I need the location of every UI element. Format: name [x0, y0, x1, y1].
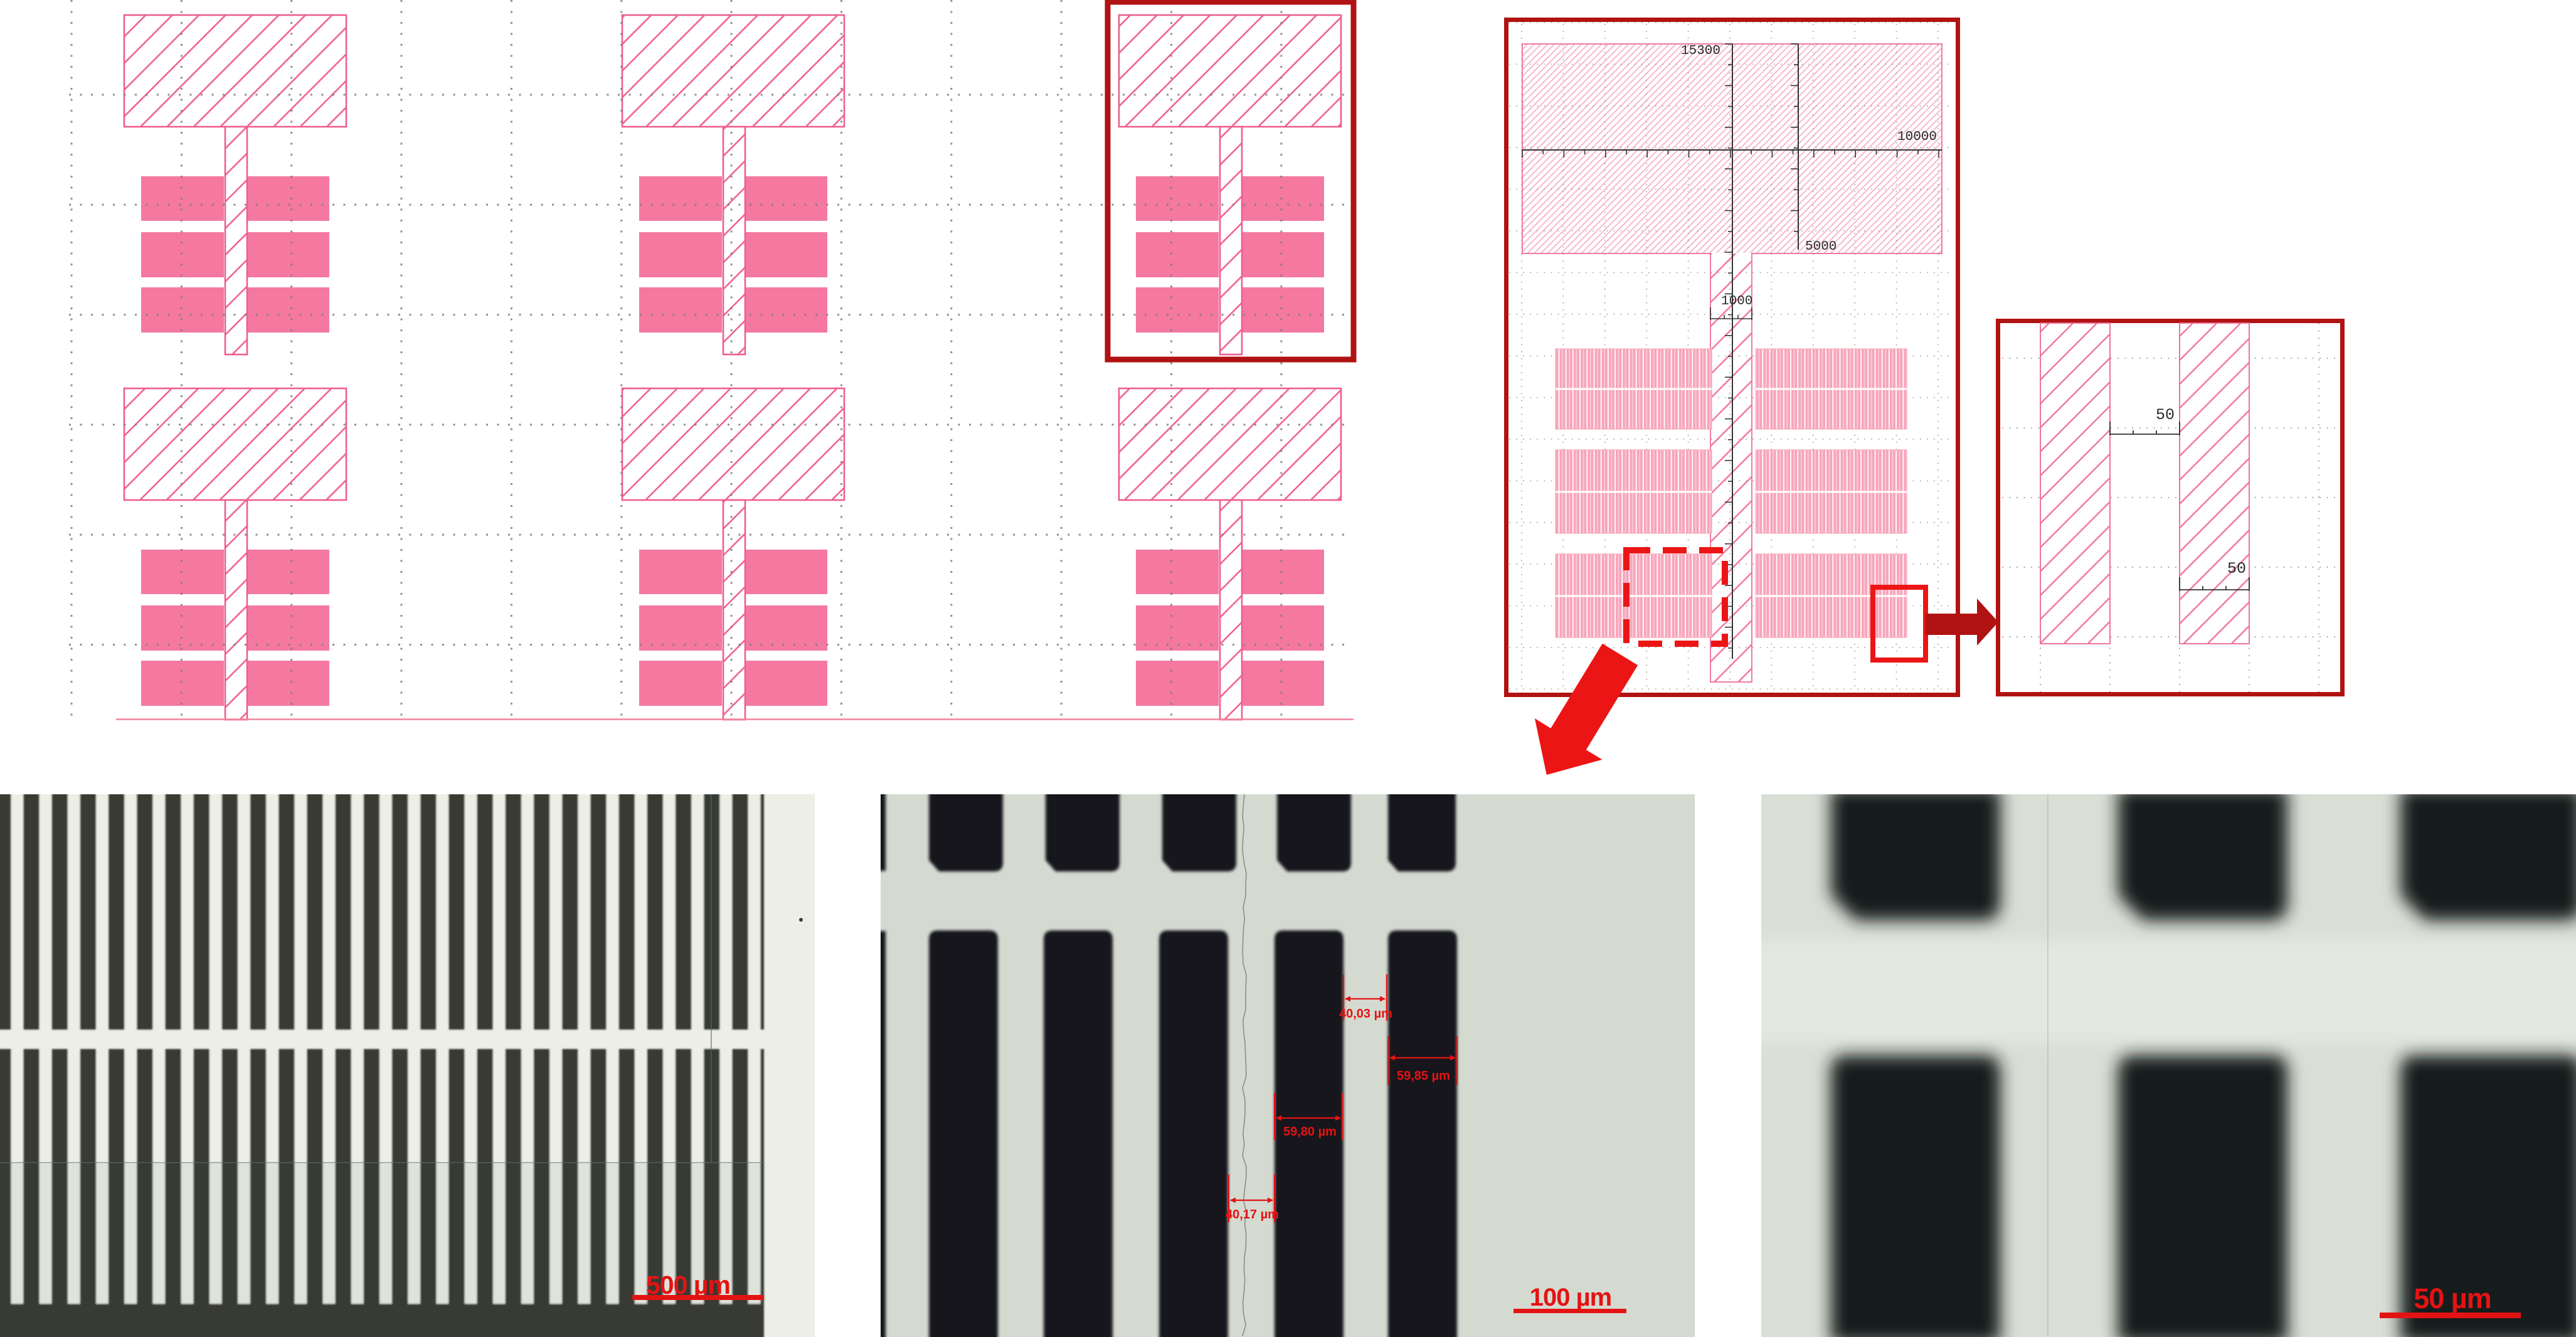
svg-text:50: 50 — [2227, 560, 2246, 578]
svg-text:1000: 1000 — [1721, 294, 1752, 309]
svg-text:10000: 10000 — [1897, 130, 1937, 144]
svg-text:50 µm: 50 µm — [2414, 1282, 2491, 1314]
svg-text:59,80 µm: 59,80 µm — [1283, 1125, 1337, 1139]
svg-text:100 µm: 100 µm — [1530, 1284, 1611, 1311]
svg-text:40,17 µm: 40,17 µm — [1226, 1208, 1279, 1222]
svg-text:15300: 15300 — [1681, 44, 1720, 58]
svg-text:40,03 µm: 40,03 µm — [1339, 1007, 1392, 1021]
svg-text:50: 50 — [2156, 406, 2175, 424]
svg-text:59,85 µm: 59,85 µm — [1397, 1069, 1450, 1083]
svg-text:5000: 5000 — [1805, 240, 1837, 254]
